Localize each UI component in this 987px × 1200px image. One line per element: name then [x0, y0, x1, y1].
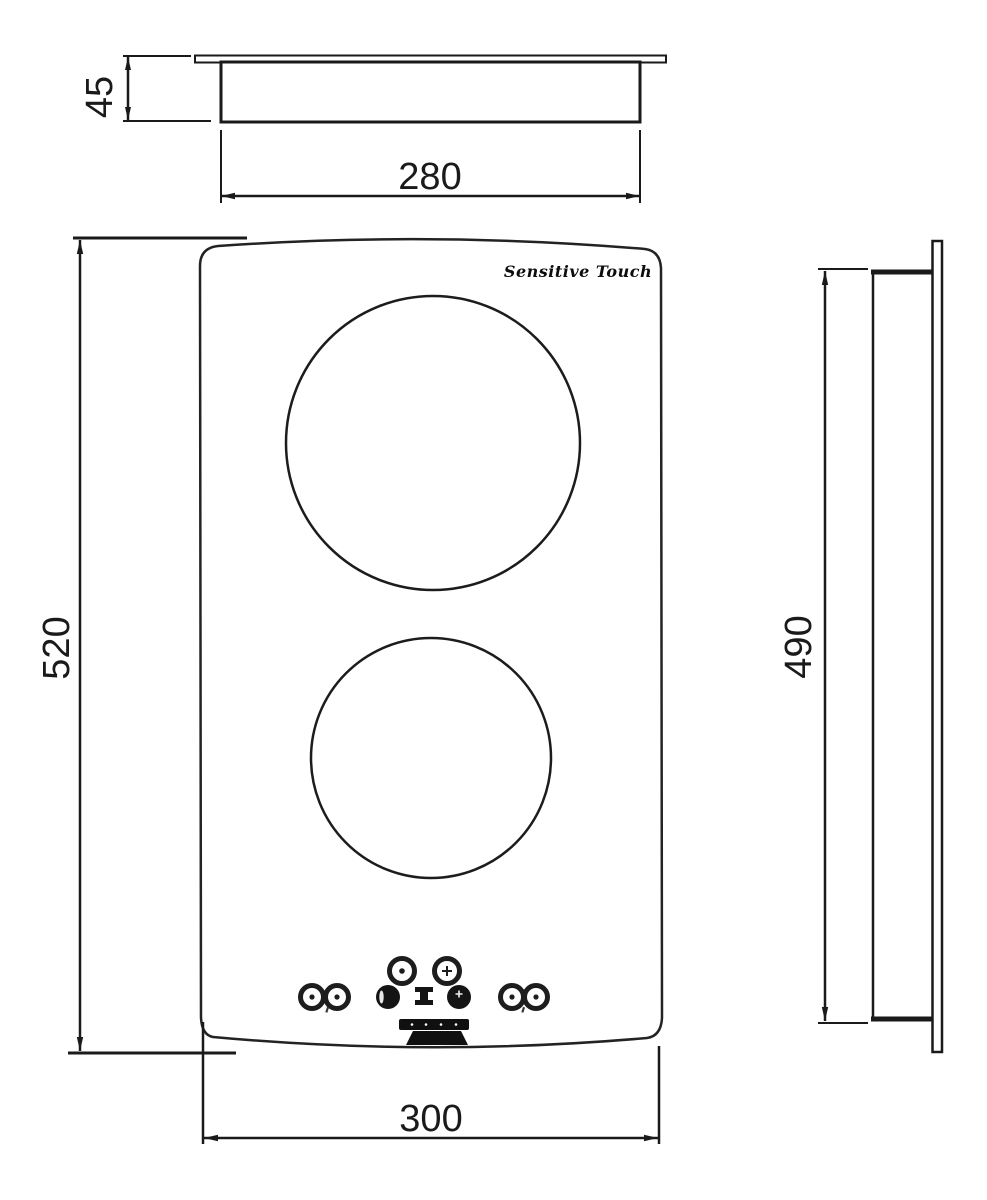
dim-490-label: 490	[778, 615, 820, 678]
sensor-dot-icon	[334, 994, 339, 999]
dim-280-label: 280	[398, 156, 461, 198]
dim-300-arrow-left	[204, 1135, 218, 1141]
side-view-body-outline	[873, 271, 933, 1020]
top-view-body-outline	[221, 62, 640, 122]
dim-300-arrow-right	[644, 1135, 658, 1141]
dim-520-arrow-down	[77, 1037, 83, 1051]
hob-glass-outline	[200, 239, 662, 1047]
dimension-45: 45	[79, 56, 211, 121]
logo-speck	[440, 1023, 443, 1026]
logo-base-block	[406, 1031, 468, 1045]
dimension-280: 280	[221, 130, 640, 203]
dim-490-arrow-down	[822, 1007, 828, 1021]
button-highlight	[379, 991, 383, 1004]
dim-45-arrow-up	[125, 57, 131, 70]
zone-select-button	[390, 959, 415, 984]
front-view: Sensitive Touch	[36, 238, 662, 1144]
dim-280-arrow-left	[221, 193, 235, 199]
sensor-dot-icon	[533, 994, 538, 999]
dim-300-label: 300	[399, 1098, 462, 1140]
dim-490-arrow-up	[822, 271, 828, 285]
plus-power-button	[447, 985, 471, 1009]
sensor-dot-icon	[509, 994, 514, 999]
zone-select-button	[435, 959, 460, 984]
dim-520-arrow-up	[77, 240, 83, 254]
logo-speck	[411, 1023, 414, 1026]
hob-dimension-drawing: 45 280 Sensitive Touch	[0, 0, 987, 1200]
minus-power-button	[376, 985, 400, 1009]
technical-drawing-page: 45 280 Sensitive Touch	[0, 0, 987, 1200]
logo-speck	[425, 1023, 428, 1026]
sensor-dot-icon	[399, 968, 405, 974]
sensor-dot-icon	[309, 994, 314, 999]
side-view: 490	[778, 241, 942, 1052]
dim-520-label: 520	[36, 616, 78, 679]
dimension-490: 490	[778, 269, 868, 1023]
dim-45-arrow-down	[125, 107, 131, 120]
dim-280-arrow-right	[626, 193, 640, 199]
logo-wordmark-block	[399, 1019, 469, 1030]
brand-sensitive-touch-label: Sensitive Touch	[504, 262, 652, 281]
side-view-glass-strip	[933, 241, 943, 1052]
top-profile-view: 45 280	[79, 56, 666, 204]
logo-speck	[455, 1023, 458, 1026]
dim-45-label: 45	[79, 76, 121, 118]
